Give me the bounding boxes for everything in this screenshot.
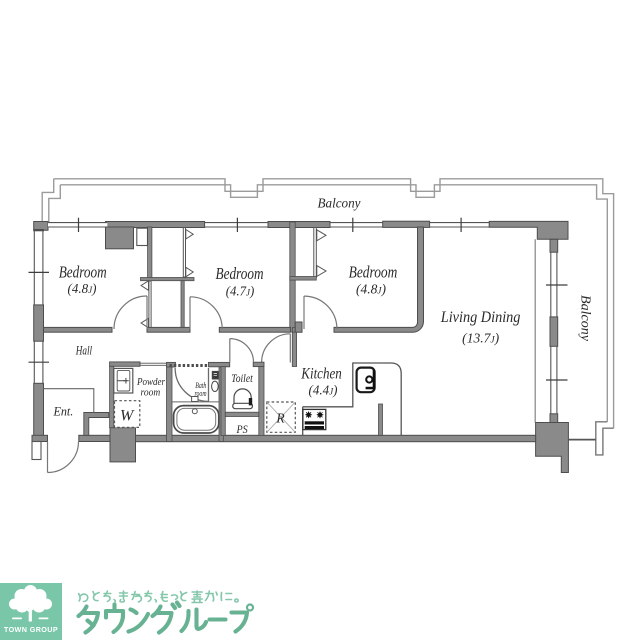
svg-text:Bedroom: Bedroom — [216, 264, 264, 283]
svg-text:Toilet: Toilet — [231, 373, 253, 385]
svg-text:(13.7J): (13.7J) — [462, 331, 500, 346]
svg-text:Hall: Hall — [75, 343, 92, 358]
svg-text:R: R — [275, 410, 285, 425]
svg-text:(4.7J): (4.7J) — [226, 284, 255, 299]
svg-text:Kitchen: Kitchen — [300, 366, 341, 383]
svg-text:Ent.: Ent. — [53, 404, 74, 419]
svg-text:(4.8J): (4.8J) — [68, 281, 97, 296]
svg-text:W: W — [120, 408, 135, 425]
svg-text:Balcony: Balcony — [579, 295, 594, 341]
svg-text:TOWN GROUP: TOWN GROUP — [4, 625, 58, 634]
svg-text:(4.8J): (4.8J) — [356, 282, 386, 297]
svg-text:Balcony: Balcony — [318, 196, 361, 211]
svg-text:Bedroom: Bedroom — [59, 263, 107, 282]
svg-text:room: room — [141, 387, 161, 398]
svg-text:PS: PS — [236, 424, 248, 436]
svg-text:(4.4J): (4.4J) — [309, 383, 338, 398]
svg-text:Bedroom: Bedroom — [349, 263, 398, 282]
svg-text:Living Dining: Living Dining — [440, 309, 521, 326]
svg-text:room: room — [195, 389, 207, 398]
